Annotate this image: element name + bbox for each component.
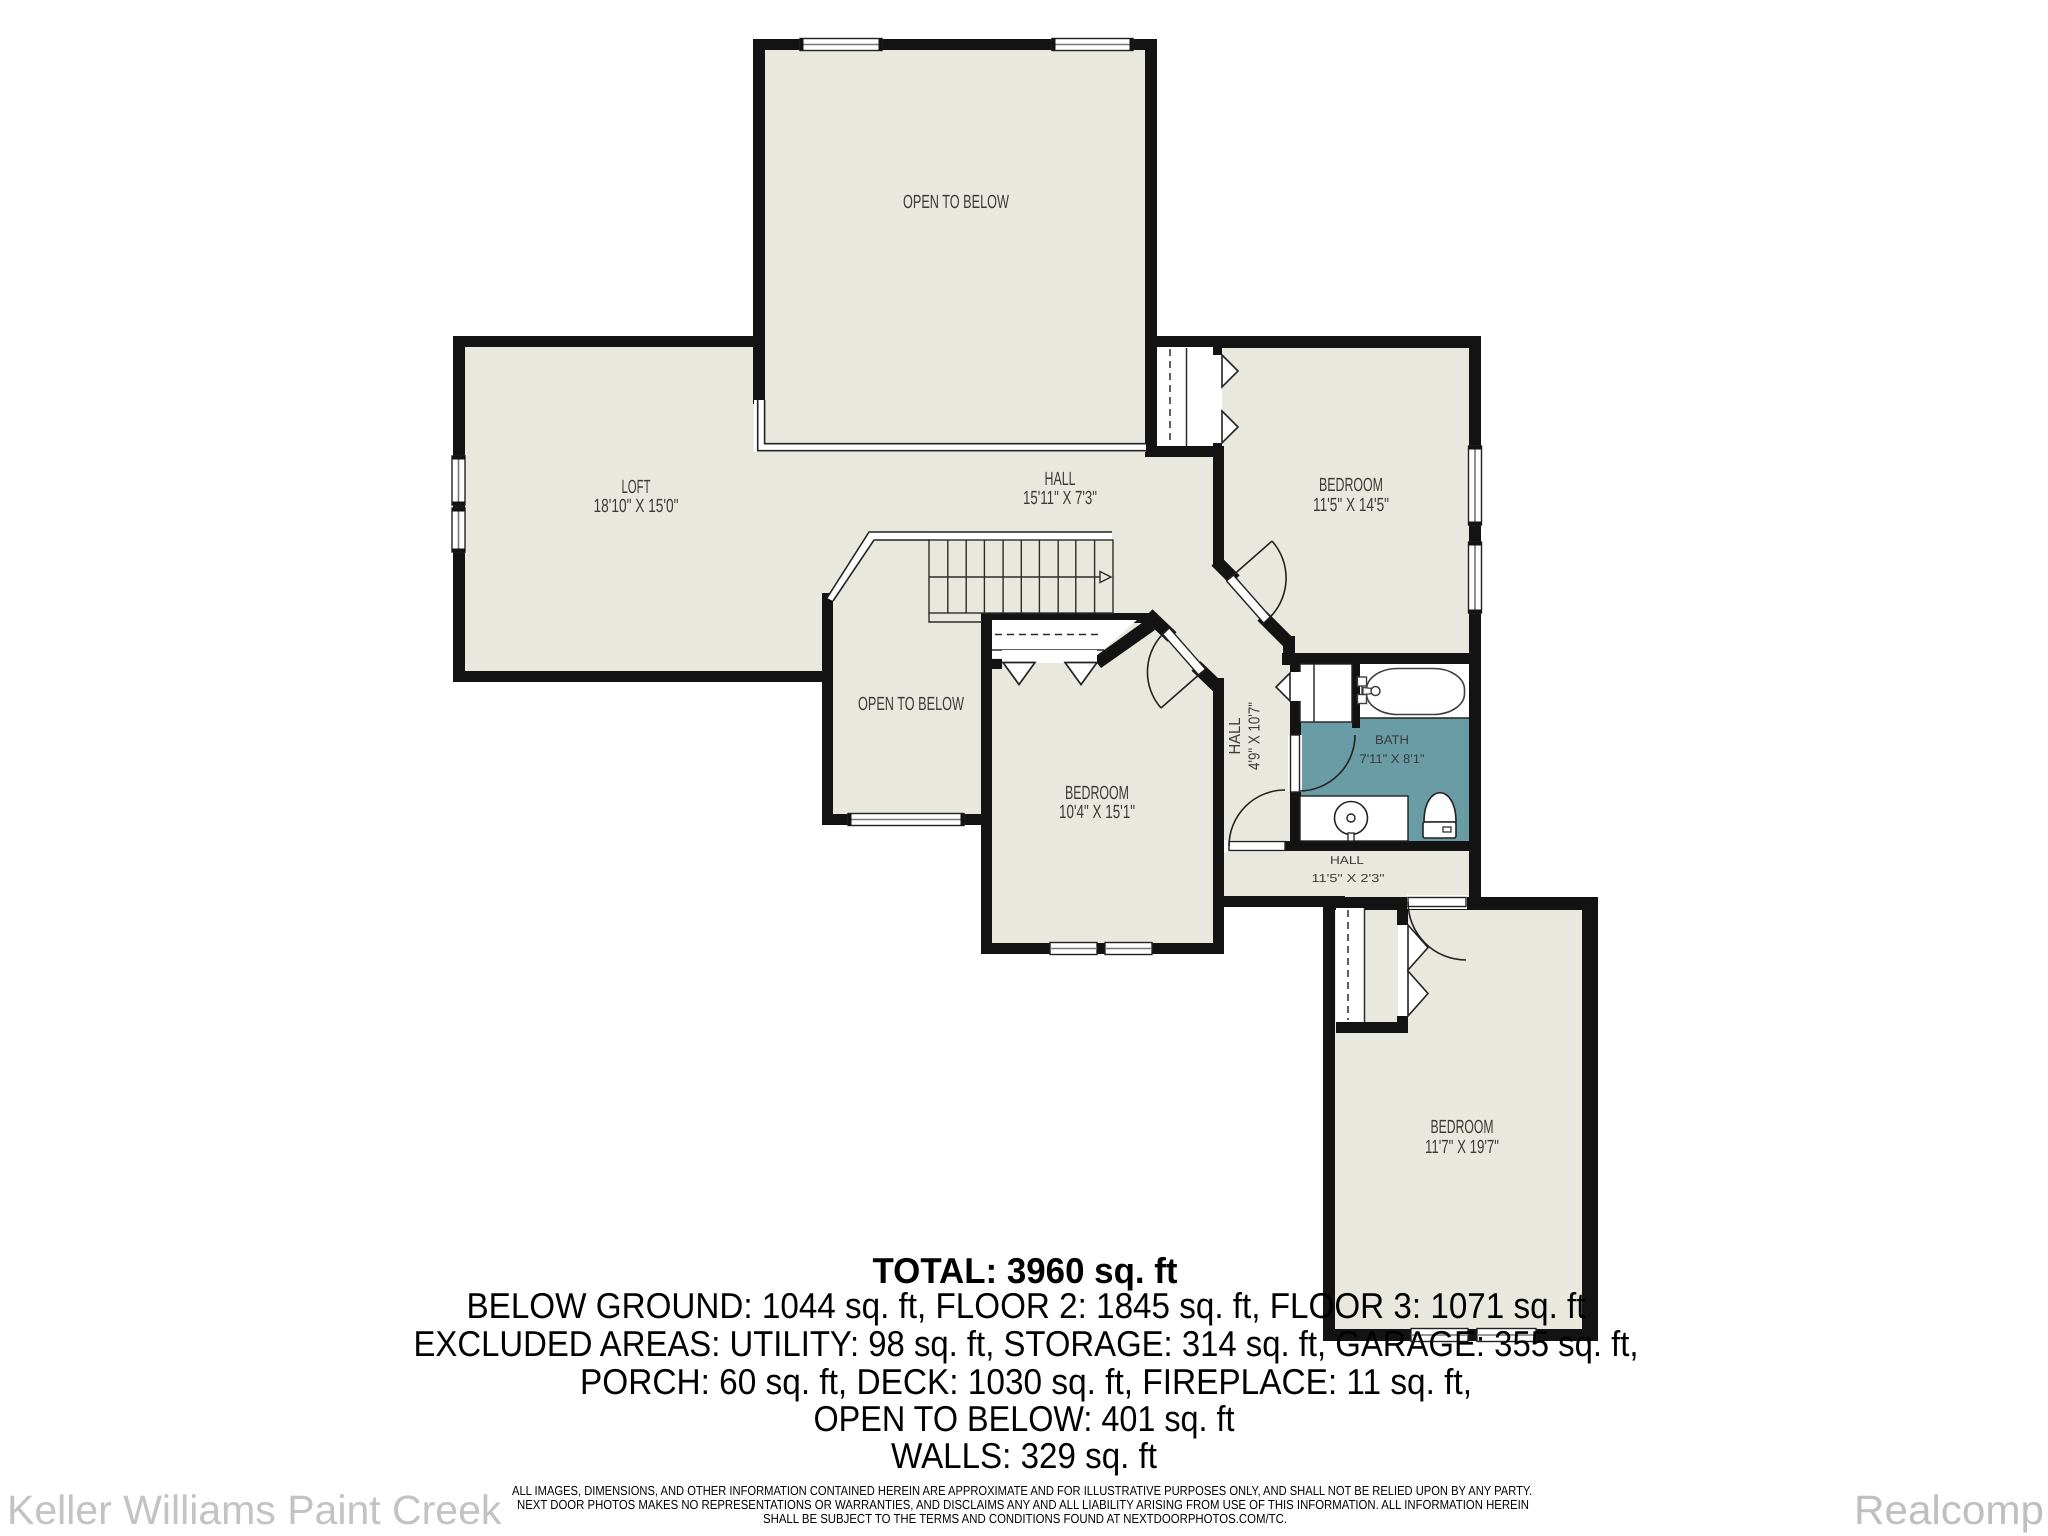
svg-text:OPEN TO BELOW: OPEN TO BELOW (858, 694, 964, 715)
svg-text:BATH: BATH (1375, 733, 1409, 747)
svg-text:Keller Williams Paint Creek: Keller Williams Paint Creek (7, 1487, 502, 1533)
svg-text:4'9" X 10'7": 4'9" X 10'7" (1247, 702, 1264, 770)
svg-text:Realcomp: Realcomp (1854, 1487, 2044, 1533)
svg-text:11'5" X 2'3": 11'5" X 2'3" (1312, 873, 1385, 885)
svg-text:ALL IMAGES, DIMENSIONS, AND OT: ALL IMAGES, DIMENSIONS, AND OTHER INFORM… (512, 1483, 1532, 1498)
svg-text:BEDROOM: BEDROOM (1431, 1117, 1494, 1138)
svg-text:OPEN TO BELOW: 401 sq. ft: OPEN TO BELOW: 401 sq. ft (814, 1398, 1235, 1439)
svg-text:10'4" X 15'1": 10'4" X 15'1" (1059, 802, 1135, 823)
svg-text:HALL: HALL (1330, 855, 1365, 867)
svg-text:BEDROOM: BEDROOM (1065, 783, 1129, 804)
svg-text:11'7" X 19'7": 11'7" X 19'7" (1425, 1137, 1499, 1158)
svg-text:PORCH: 60 sq. ft, DECK: 1030 s: PORCH: 60 sq. ft, DECK: 1030 sq. ft, FIR… (580, 1361, 1472, 1402)
svg-text:HALL: HALL (1045, 469, 1076, 490)
svg-text:NEXT DOOR PHOTOS MAKES NO REPR: NEXT DOOR PHOTOS MAKES NO REPRESENTATION… (517, 1497, 1529, 1512)
svg-text:LOFT: LOFT (622, 477, 651, 498)
svg-text:EXCLUDED AREAS: UTILITY: 98 sq: EXCLUDED AREAS: UTILITY: 98 sq. ft, STOR… (414, 1323, 1639, 1364)
svg-text:HALL: HALL (1227, 717, 1244, 754)
svg-text:WALLS: 329 sq. ft: WALLS: 329 sq. ft (891, 1435, 1157, 1476)
svg-text:7'11" X 8'1": 7'11" X 8'1" (1360, 752, 1425, 766)
svg-text:18'10" X 15'0": 18'10" X 15'0" (594, 496, 679, 517)
svg-text:BELOW GROUND: 1044 sq. ft, FLO: BELOW GROUND: 1044 sq. ft, FLOOR 2: 1845… (467, 1285, 1586, 1326)
svg-text:11'5" X 14'5": 11'5" X 14'5" (1313, 495, 1389, 516)
svg-text:BEDROOM: BEDROOM (1319, 475, 1383, 496)
svg-text:SHALL BE SUBJECT TO THE TERMS: SHALL BE SUBJECT TO THE TERMS AND CONDIT… (763, 1511, 1287, 1526)
svg-text:OPEN TO BELOW: OPEN TO BELOW (903, 192, 1009, 213)
svg-text:15'11" X 7'3": 15'11" X 7'3" (1023, 488, 1097, 509)
